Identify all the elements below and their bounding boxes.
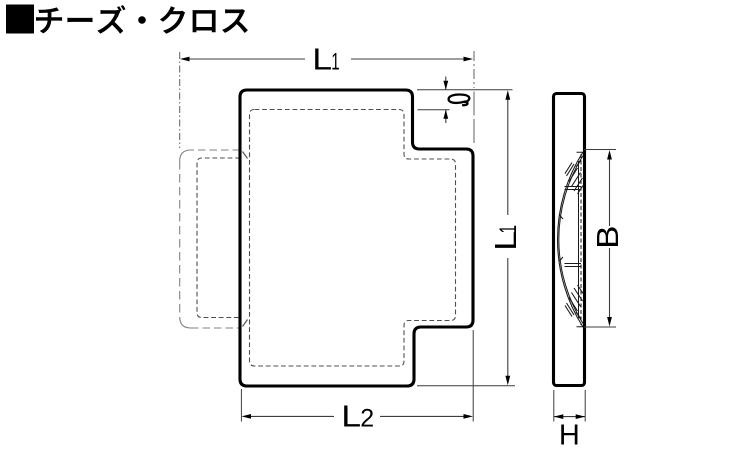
svg-text:1: 1 [495, 225, 521, 233]
svg-text:1: 1 [331, 49, 339, 75]
svg-text:B: B [591, 226, 626, 249]
svg-text:L: L [312, 42, 332, 76]
svg-text:H: H [559, 420, 580, 450]
svg-text:2: 2 [360, 404, 374, 432]
svg-text:L: L [341, 399, 361, 433]
